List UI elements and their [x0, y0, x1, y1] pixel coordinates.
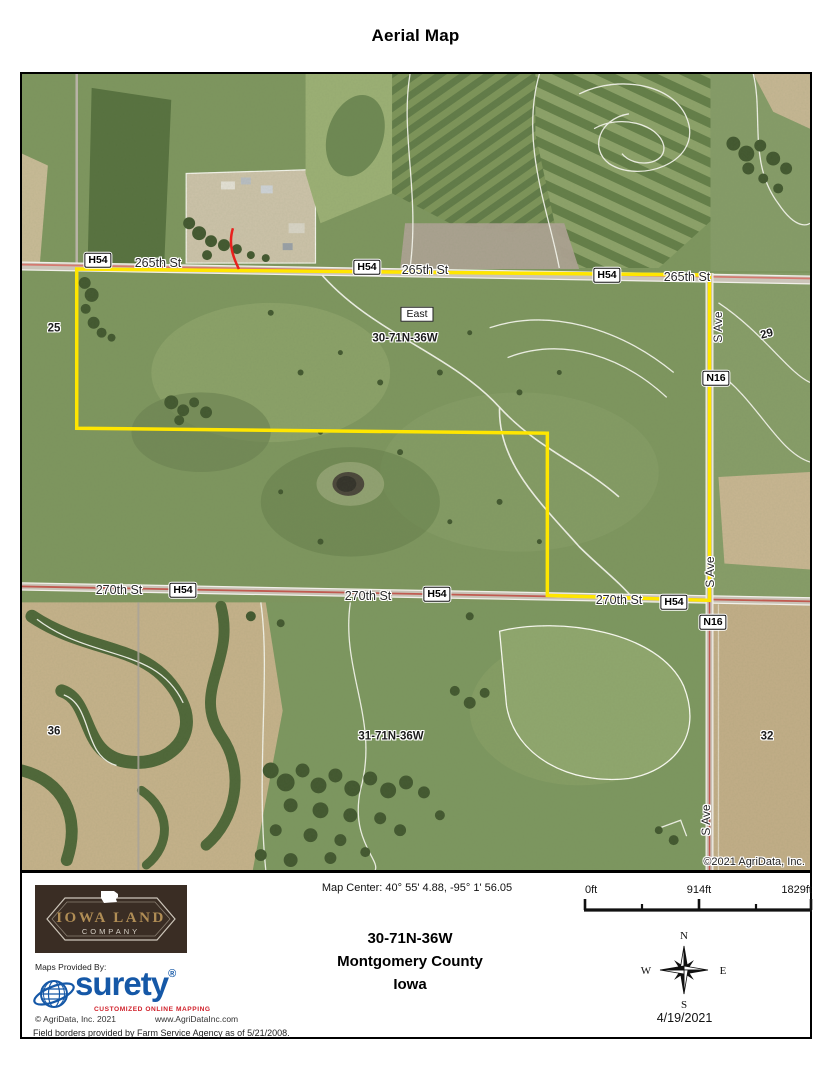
location-block: 30-71N-36W Montgomery County Iowa [300, 927, 520, 996]
route-badge-h54: H54 [660, 595, 687, 610]
scale-bar: 0ft 914ft 1829ft [582, 879, 814, 919]
route-badge-n16: N16 [699, 615, 726, 630]
township-label-31: 31-71N-36W [358, 731, 423, 743]
surety-globe-icon [33, 973, 77, 1015]
section-number-25: 25 [48, 323, 61, 335]
aerial-imagery [22, 74, 810, 870]
route-badge-h54: H54 [169, 583, 196, 598]
township-label-30: 30-71N-36W [372, 333, 437, 345]
agridata-copyright: © AgriData, Inc. 2021 [35, 1014, 116, 1024]
registered-mark: ® [168, 968, 175, 980]
county-title: Montgomery County [300, 950, 520, 973]
route-badge-n16: N16 [702, 371, 729, 386]
compass-north-label: N [680, 930, 688, 942]
aerial-texture [22, 74, 810, 870]
route-badge-h54: H54 [84, 253, 111, 268]
compass-south-label: S [681, 999, 687, 1011]
township-title: 30-71N-36W [300, 927, 520, 950]
compass-east-label: E [720, 965, 727, 977]
scale-mid-label: 914ft [687, 884, 711, 896]
iowa-land-company-logo: IOWA LAND COMPANY [35, 885, 187, 953]
aerial-map-report: Aerial Map [0, 0, 831, 1080]
road-label-s-ave: S Ave [704, 556, 716, 587]
surety-copyright-row: © AgriData, Inc. 2021 www.AgriDataInc.co… [35, 1014, 247, 1024]
route-badge-h54: H54 [423, 587, 450, 602]
surety-logo: surety® CUSTOMIZED ONLINE MAPPING [33, 973, 263, 1015]
east-label: East [400, 307, 433, 322]
aerial-map: 265th St 265th St 265th St 270th St 270t… [20, 72, 812, 872]
section-number-32: 32 [761, 731, 774, 743]
road-label-270th-st: 270th St [345, 590, 392, 603]
compass-west-label: W [641, 965, 652, 977]
section-number-36: 36 [48, 726, 61, 738]
road-label-s-ave: S Ave [712, 311, 724, 342]
road-label-270th-st: 270th St [96, 584, 143, 597]
route-badge-h54: H54 [353, 260, 380, 275]
road-label-s-ave: S Ave [700, 804, 712, 835]
state-title: Iowa [300, 973, 520, 996]
agridata-website-link[interactable]: www.AgriDataInc.com [155, 1014, 238, 1024]
iowa-land-subtitle: COMPANY [82, 927, 140, 936]
map-date: 4/19/2021 [622, 1011, 747, 1025]
surety-wordmark: surety® [75, 965, 175, 1003]
route-badge-h54: H54 [593, 268, 620, 283]
surety-tagline: CUSTOMIZED ONLINE MAPPING [94, 1006, 211, 1013]
footer-panel: IOWA LAND COMPANY Maps Provided By: sure… [20, 871, 812, 1039]
road-label-265th-st: 265th St [402, 264, 449, 277]
scale-max-label: 1829ft [781, 884, 812, 896]
road-label-265th-st: 265th St [135, 257, 182, 270]
iowa-state-icon [101, 891, 118, 903]
surety-name-text: surety [75, 965, 168, 1002]
road-label-265th-st: 265th St [664, 271, 711, 284]
road-label-270th-st: 270th St [596, 594, 643, 607]
compass-rose: N W E S [622, 925, 747, 1011]
map-center-coordinates: Map Center: 40° 55' 4.88, -95° 1' 56.05 [262, 882, 572, 894]
field-borders-disclaimer: Field borders provided by Farm Service A… [33, 1028, 290, 1038]
iowa-land-name: IOWA LAND [56, 910, 166, 926]
scale-zero-label: 0ft [585, 884, 597, 896]
page-title: Aerial Map [0, 26, 831, 46]
map-copyright: ©2021 AgriData, Inc. [703, 856, 805, 868]
